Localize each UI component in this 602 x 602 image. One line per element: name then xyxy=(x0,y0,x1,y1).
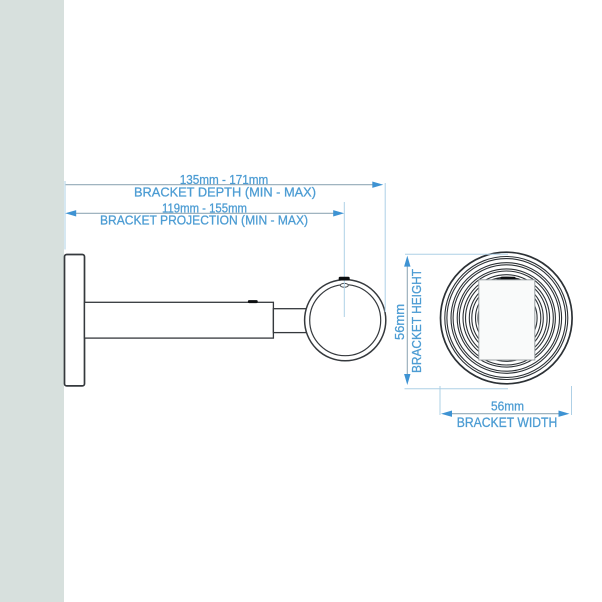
svg-text:BRACKET PROJECTION (MIN - MAX): BRACKET PROJECTION (MIN - MAX) xyxy=(100,213,308,228)
svg-text:BRACKET DEPTH (MIN - MAX): BRACKET DEPTH (MIN - MAX) xyxy=(134,185,316,200)
svg-text:56mm: 56mm xyxy=(392,304,407,340)
svg-text:56mm: 56mm xyxy=(491,398,524,413)
svg-text:BRACKET WIDTH: BRACKET WIDTH xyxy=(457,415,558,430)
svg-text:BRACKET HEIGHT: BRACKET HEIGHT xyxy=(409,269,424,373)
